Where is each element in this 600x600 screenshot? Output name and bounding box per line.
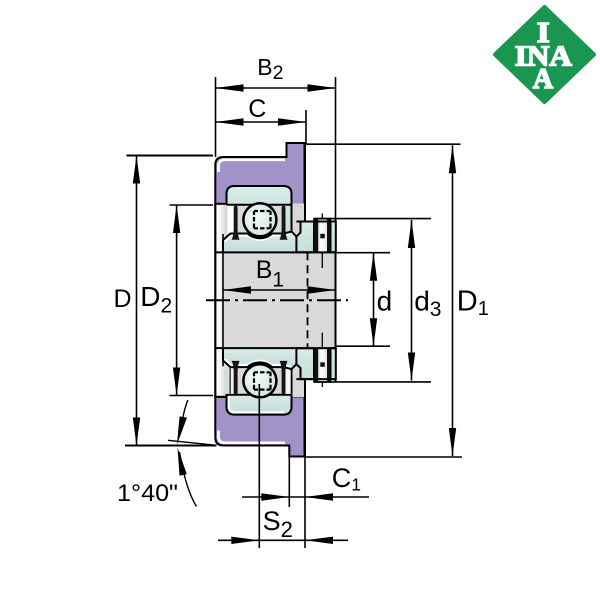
svg-text:1°40": 1°40" <box>117 480 178 507</box>
svg-text:d3: d3 <box>414 285 441 321</box>
svg-text:A: A <box>533 64 554 95</box>
svg-text:S2: S2 <box>263 506 293 542</box>
svg-text:D1: D1 <box>457 285 489 320</box>
svg-text:D: D <box>114 285 132 313</box>
svg-text:C: C <box>248 95 266 123</box>
svg-text:d: d <box>377 285 393 316</box>
svg-text:C1: C1 <box>332 463 361 495</box>
svg-text:D2: D2 <box>140 281 172 317</box>
svg-text:I: I <box>537 18 550 49</box>
svg-text:B2: B2 <box>257 54 283 84</box>
